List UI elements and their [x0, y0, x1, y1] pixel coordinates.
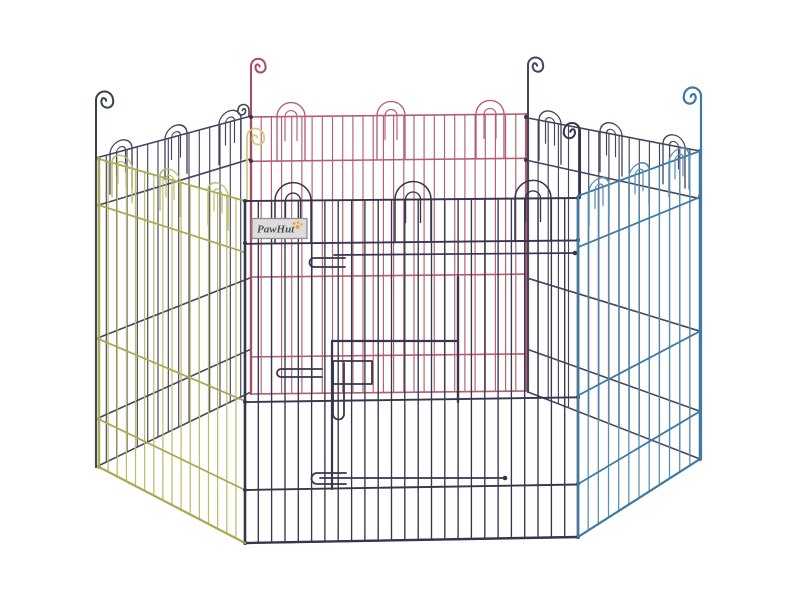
- svg-text:PawHut: PawHut: [257, 224, 295, 236]
